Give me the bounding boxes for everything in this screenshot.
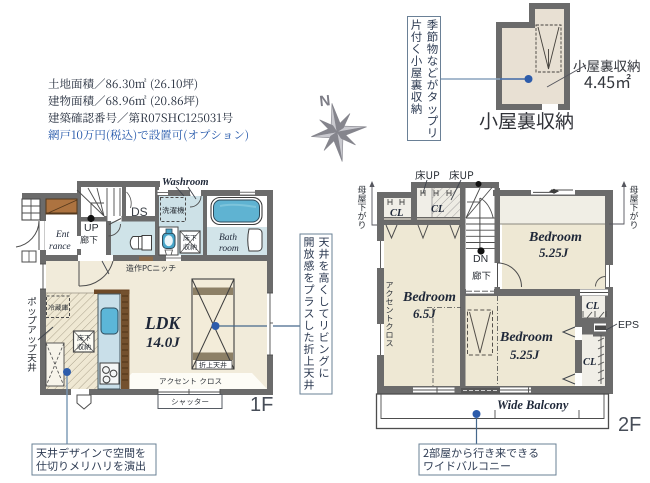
svg-text:N: N [319,92,332,110]
svg-text:CL: CL [583,357,596,368]
svg-text:Bedroom: Bedroom [528,230,582,245]
svg-text:Bedroom: Bedroom [402,290,456,305]
svg-text:5.25J: 5.25J [510,347,540,362]
svg-text:UP: UP [84,222,99,234]
svg-text:EPS: EPS [618,319,639,331]
svg-text:Bedroom: Bedroom [499,330,553,345]
svg-text:DS: DS [131,205,148,219]
svg-text:Bath: Bath [219,233,237,243]
svg-text:Wide Balcony: Wide Balcony [497,398,569,412]
svg-text:1F: 1F [250,394,273,416]
svg-text:5.25J: 5.25J [539,245,569,260]
svg-text:CL: CL [390,208,403,219]
svg-text:rance: rance [49,242,71,252]
svg-text:Ent: Ent [55,230,70,240]
svg-text:LDK: LDK [144,313,181,333]
svg-text:CL: CL [431,204,444,215]
svg-text:2F: 2F [618,414,641,436]
svg-text:DN: DN [473,253,488,265]
svg-text:CL: CL [586,301,599,312]
svg-text:Washroom: Washroom [162,177,209,188]
svg-text:14.0J: 14.0J [146,335,180,351]
svg-text:room: room [219,244,239,254]
